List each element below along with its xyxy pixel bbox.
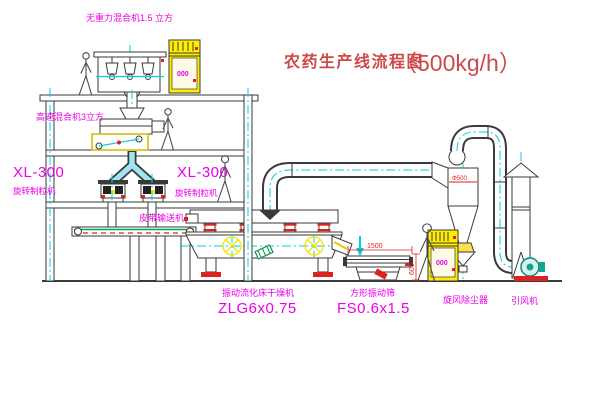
label-high-speed-mixer: 高速混合机3立方 xyxy=(36,111,104,122)
dimension-height-text: 600 xyxy=(409,263,416,275)
red-indicator xyxy=(161,59,164,62)
cyclone-outlet-elbow xyxy=(449,149,465,165)
label-sieve-model: FS0.6x1.5 xyxy=(337,300,410,317)
label-dryer-model: ZLG6x0.75 xyxy=(218,300,297,317)
label-gravity-free-mixer: 无重力混合机1.5 立方 xyxy=(86,12,173,23)
red-hub xyxy=(117,141,121,145)
label-granulator-right-name: 旋转制粒机 xyxy=(175,188,218,198)
label-granulator-right-model: XL-300 xyxy=(177,164,228,181)
dimension-length-text: 1500 xyxy=(367,243,383,250)
drawing-title-capacity: （500kg/h） xyxy=(394,50,522,76)
label-fan: 引风机 xyxy=(511,295,538,306)
cabinet-display: 000 xyxy=(177,71,189,78)
cabinet-red-lamp xyxy=(453,236,456,239)
dryer-base-pad-left xyxy=(201,272,221,277)
label-sieve-name: 方形振动筛 xyxy=(350,287,395,298)
cabinet-red-lamp xyxy=(195,47,198,50)
granulator-downspout-left xyxy=(108,202,116,227)
dryer-base-pad-right xyxy=(313,272,333,277)
label-granulator-left-name: 旋转制粒机 xyxy=(13,186,56,196)
label-belt-conveyor: 皮带输送机 xyxy=(139,212,184,223)
fan-base-pad xyxy=(514,276,548,281)
label-granulator-left-model: XL-300 xyxy=(13,164,64,181)
cabinet-red-button xyxy=(452,268,455,271)
label-dryer-name: 振动流化床干燥机 xyxy=(222,287,294,298)
control-cabinet-top: 000 xyxy=(169,40,200,93)
drawing-canvas: 000 xyxy=(0,0,600,403)
cyclone-diameter-mark: Φ500 xyxy=(452,176,467,182)
cabinet-red-button xyxy=(193,79,196,82)
cabinet-display: 000 xyxy=(436,260,448,267)
process-flow-diagram: 000 xyxy=(0,0,600,403)
label-cyclone: 旋风除尘器 xyxy=(443,294,488,305)
